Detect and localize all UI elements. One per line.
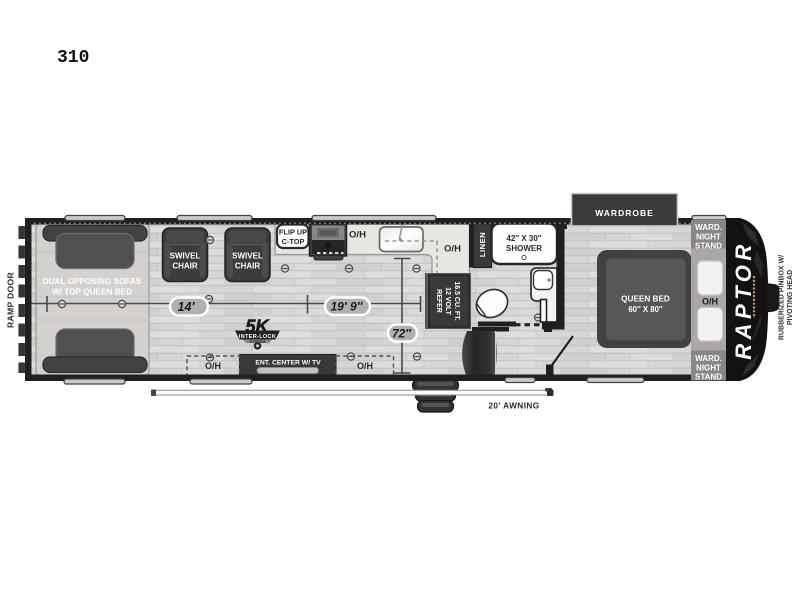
- svg-text:14′: 14′: [178, 300, 196, 314]
- svg-text:SWIVEL: SWIVEL: [232, 252, 263, 261]
- svg-text:WARD.: WARD.: [695, 223, 722, 232]
- svg-text:RAMP DOOR: RAMP DOOR: [6, 272, 16, 329]
- svg-text:O/H: O/H: [205, 361, 221, 371]
- svg-text:DUAL OPPOSING SOFAS: DUAL OPPOSING SOFAS: [43, 277, 142, 286]
- svg-text:20′ AWNING: 20′ AWNING: [488, 401, 539, 411]
- svg-text:CHAIR: CHAIR: [172, 262, 198, 271]
- svg-text:STAND: STAND: [695, 242, 722, 251]
- svg-text:FLIP UP: FLIP UP: [279, 228, 307, 237]
- svg-text:STAND: STAND: [695, 373, 722, 382]
- svg-text:O/H: O/H: [444, 244, 461, 255]
- svg-text:310: 310: [57, 48, 89, 68]
- svg-text:LINEN: LINEN: [478, 232, 487, 257]
- svg-text:W/ TOP QUEEN BED: W/ TOP QUEEN BED: [52, 288, 132, 297]
- svg-text:SHOWER: SHOWER: [506, 244, 542, 253]
- svg-text:O/H: O/H: [702, 297, 718, 307]
- svg-text:72″: 72″: [392, 327, 412, 341]
- svg-text:NIGHT: NIGHT: [696, 233, 721, 242]
- svg-text:C-TOP: C-TOP: [282, 237, 305, 246]
- svg-text:WARD.: WARD.: [695, 354, 722, 363]
- svg-text:WARDROBE: WARDROBE: [595, 208, 654, 218]
- svg-text:RAPTOR: RAPTOR: [731, 240, 756, 360]
- svg-text:RUBBERIZED PINBOX W/PIVOTING H: RUBBERIZED PINBOX W/PIVOTING HEAD: [779, 255, 795, 340]
- svg-text:19′ 9″: 19′ 9″: [331, 300, 364, 314]
- svg-text:60″ X 80″: 60″ X 80″: [628, 305, 663, 314]
- svg-text:O/H: O/H: [349, 230, 366, 241]
- svg-text:42″ X 30″: 42″ X 30″: [506, 234, 541, 243]
- svg-text:NIGHT: NIGHT: [696, 364, 721, 373]
- svg-text:O/H: O/H: [357, 361, 373, 371]
- svg-text:CHAIR: CHAIR: [235, 262, 261, 271]
- svg-text:SWIVEL: SWIVEL: [170, 252, 201, 261]
- svg-text:ENT. CENTER W/ TV: ENT. CENTER W/ TV: [255, 360, 321, 367]
- svg-text:QUEEN BED: QUEEN BED: [621, 295, 670, 304]
